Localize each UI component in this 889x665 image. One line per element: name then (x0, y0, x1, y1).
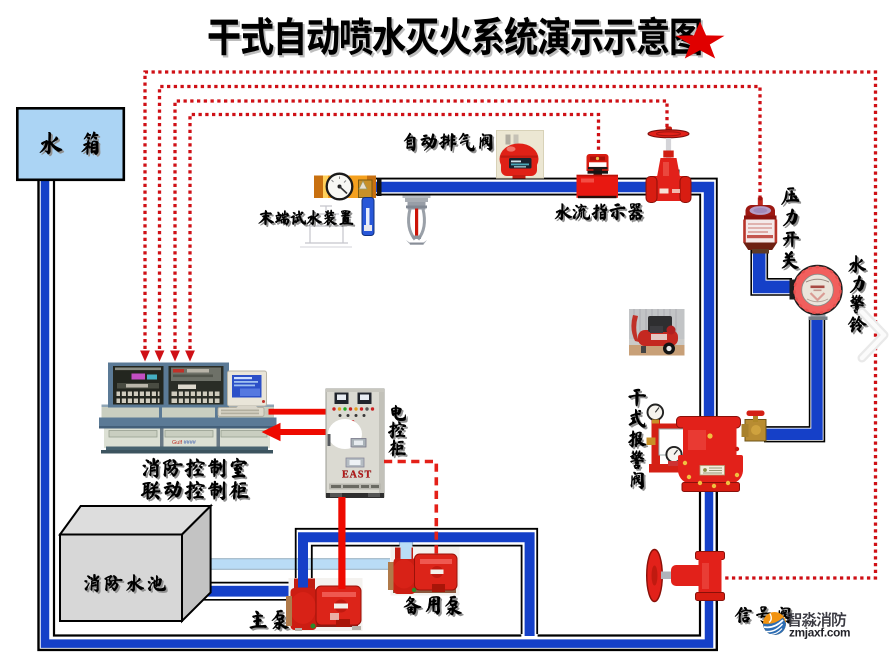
svg-text:Gulf ####: Gulf #### (172, 440, 197, 446)
svg-text:EAST: EAST (342, 470, 372, 481)
svg-text:zmjaxf.com: zmjaxf.com (789, 626, 850, 640)
